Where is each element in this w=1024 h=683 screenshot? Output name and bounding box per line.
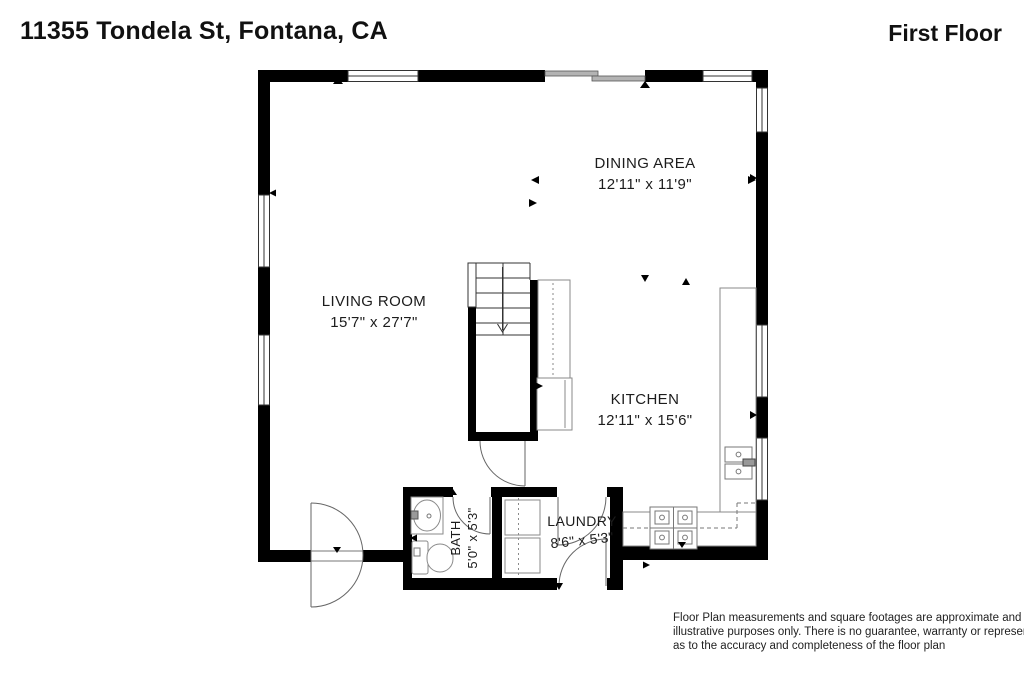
window-right-2 — [757, 325, 768, 397]
wall-left — [258, 70, 270, 562]
room-label-living: LIVING ROOM 15'7" x 27'7" — [274, 291, 474, 333]
tick — [643, 562, 650, 569]
window-left-2 — [259, 335, 270, 405]
room-dimensions: 5'0" x 5'3" — [464, 490, 481, 586]
bath-faucet — [411, 511, 418, 519]
sliding-glass-door — [545, 70, 645, 82]
room-name: KITCHEN — [545, 389, 745, 410]
tick — [640, 81, 650, 88]
wall-top — [258, 70, 768, 82]
room-dimensions: 12'11" x 11'9" — [545, 174, 745, 195]
window-top-2 — [703, 71, 752, 82]
kitchen-hall-door — [480, 441, 525, 486]
window-left-1 — [259, 195, 270, 267]
kitchen-faucet — [743, 459, 755, 466]
window-right-1 — [757, 88, 768, 132]
floor-plan-drawing — [0, 0, 1024, 683]
room-label-bath: BATH 5'0" x 5'3" — [447, 490, 481, 586]
staircase — [468, 263, 530, 335]
tick — [682, 278, 690, 285]
room-label-kitchen: KITCHEN 12'11" x 15'6" — [545, 389, 745, 431]
pantry-cabinet — [538, 280, 570, 378]
tick — [641, 275, 649, 282]
window-top-1 — [348, 71, 418, 82]
disclaimer-line: illustrative purposes only. There is no … — [673, 625, 1018, 639]
room-dimensions: 12'11" x 15'6" — [545, 410, 745, 431]
washer — [505, 500, 540, 535]
laundry-bottom-door-opening — [557, 576, 607, 592]
tick — [531, 176, 539, 184]
tick — [269, 190, 276, 197]
window-right-3 — [757, 438, 768, 500]
laundry-top-door-opening — [557, 485, 607, 499]
stair-down-arrow — [498, 267, 508, 332]
room-label-dining: DINING AREA 12'11" x 11'9" — [545, 153, 745, 195]
room-name: BATH — [447, 490, 464, 586]
tick — [529, 199, 537, 207]
wall-bath-laundry-divider — [492, 487, 502, 590]
wall-stair-bottom — [468, 432, 538, 441]
disclaimer: Floor Plan measurements and square foota… — [673, 611, 1018, 653]
disclaimer-line: Floor Plan measurements and square foota… — [673, 611, 1018, 625]
bathroom-sink-vanity — [411, 497, 443, 534]
disclaimer-line: as to the accuracy and completeness of t… — [673, 639, 1018, 653]
room-label-laundry: LAUNDRY — [537, 513, 627, 529]
room-name: DINING AREA — [545, 153, 745, 174]
room-dimensions: 15'7" x 27'7" — [274, 312, 474, 333]
floor-plan-page: 11355 Tondela St, Fontana, CA First Floo… — [0, 0, 1024, 683]
room-name: LIVING ROOM — [274, 291, 474, 312]
